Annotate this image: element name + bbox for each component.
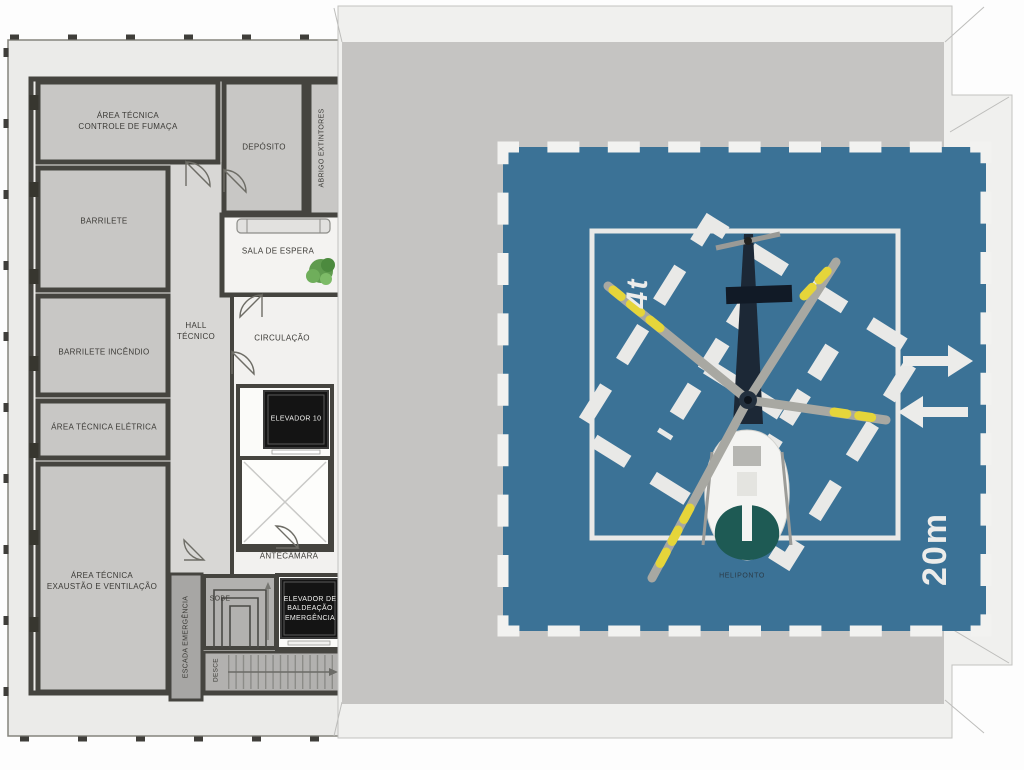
room-abrigo-extintores (309, 82, 342, 215)
rotor-hub-cap (744, 396, 752, 404)
room-deposito (224, 82, 304, 213)
stabilizer (726, 285, 793, 304)
elevator-10-cab (264, 391, 328, 448)
floor-plan-drawing (6, 37, 345, 739)
elevador-baldeacao-cab (281, 579, 338, 638)
plan-and-roof-drawing (0, 0, 1024, 770)
room-escada-emergencia (170, 574, 202, 700)
room-exaustao (38, 464, 168, 692)
room-controle-fumaca (38, 82, 218, 162)
rooftop-drawing (334, 6, 1012, 738)
elevator-10-sill (272, 450, 320, 454)
room-barrilete-incendio (38, 296, 168, 395)
engine-cover (733, 446, 761, 466)
room-area-eletrica (38, 401, 168, 458)
room-barrilete (38, 168, 168, 290)
windshield-divider (742, 503, 752, 541)
bench (237, 219, 330, 233)
elevador-baldeacao-sill (288, 641, 330, 645)
cabin-roof (737, 472, 757, 496)
helipad (503, 147, 986, 631)
floor-plan-render: ÁREA TÉCNICA CONTROLE DE FUMAÇA BARRILET… (0, 0, 1024, 770)
